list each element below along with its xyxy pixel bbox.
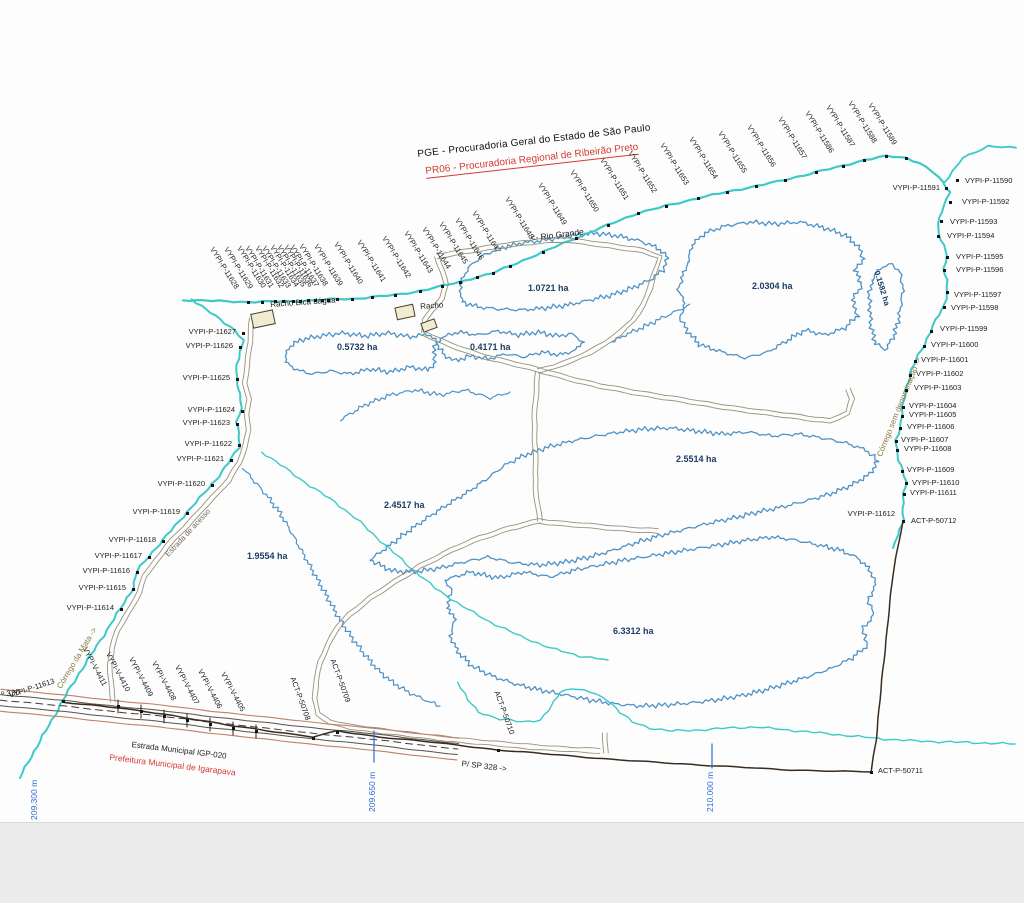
highway-inner-edge — [1, 695, 459, 744]
map-linework — [0, 0, 1024, 902]
corrego-sem-denominacao-stream — [893, 183, 950, 548]
area-polygon — [370, 426, 879, 574]
farm-road — [540, 519, 658, 529]
area-polygon — [285, 331, 437, 375]
highway-outer-edge — [1, 689, 459, 738]
farm-road — [602, 733, 603, 753]
bottom-margin-strip — [0, 822, 1024, 903]
corrego-da-mata-stream — [20, 299, 244, 778]
tributary-stream — [944, 146, 1016, 183]
farm-road — [317, 523, 600, 749]
area-polygons — [242, 220, 904, 708]
building-rect — [395, 304, 415, 319]
farm-road — [423, 335, 855, 423]
building-rect — [251, 310, 275, 328]
grid-ticks — [118, 700, 712, 768]
farm-road — [425, 331, 849, 418]
farm-road — [537, 372, 543, 521]
access-road — [107, 318, 249, 702]
area-boundary-line — [612, 304, 690, 342]
area-boundary-line — [341, 389, 511, 421]
streams — [20, 146, 1016, 778]
farm-road — [312, 519, 600, 754]
area-polygon — [867, 264, 904, 351]
rio-grande-stream — [183, 155, 944, 302]
area-polygon — [445, 536, 876, 708]
farm-road — [607, 733, 608, 753]
building-rect — [421, 319, 437, 332]
access-road — [112, 318, 254, 702]
roads — [107, 238, 854, 754]
municipal-highway — [0, 689, 459, 760]
highway-center-line — [0, 700, 458, 749]
cadastral-map: PGE - Procuradoria Geral do Estado de Sã… — [0, 0, 1024, 902]
area-polygon — [677, 220, 865, 359]
area-boundary-line — [242, 469, 440, 707]
buildings — [251, 304, 437, 332]
small-stream — [458, 682, 1015, 744]
